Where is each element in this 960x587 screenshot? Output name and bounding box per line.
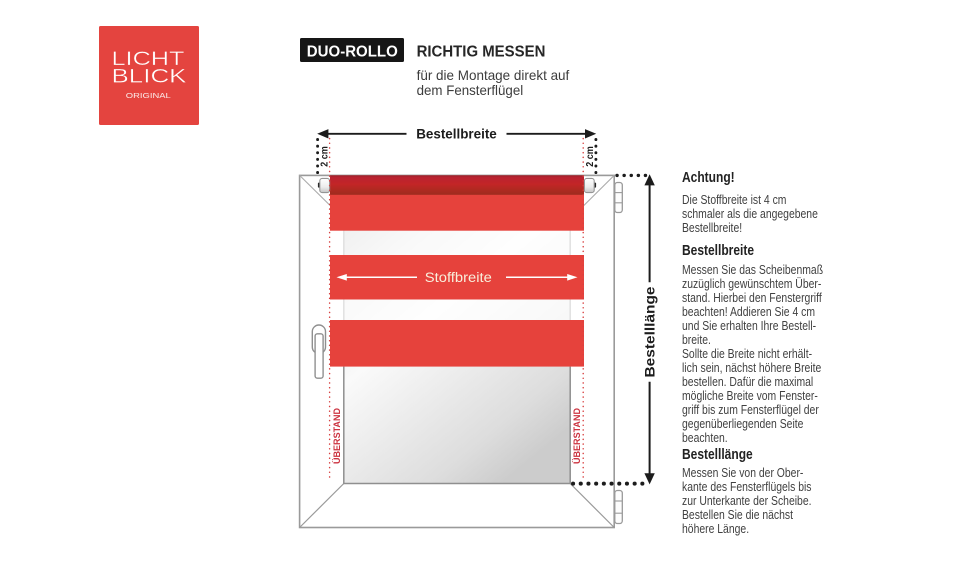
svg-text:Bestelllänge: Bestelllänge (642, 286, 657, 378)
svg-text:Stoffbreite: Stoffbreite (425, 270, 492, 285)
svg-text:2 cm: 2 cm (585, 146, 596, 167)
svg-text:2 cm: 2 cm (320, 146, 331, 167)
svg-text:ÜBERSTAND: ÜBERSTAND (572, 408, 582, 464)
svg-text:ÜBERSTAND: ÜBERSTAND (332, 408, 342, 464)
svg-text:Bestellbreite: Bestellbreite (416, 126, 497, 141)
